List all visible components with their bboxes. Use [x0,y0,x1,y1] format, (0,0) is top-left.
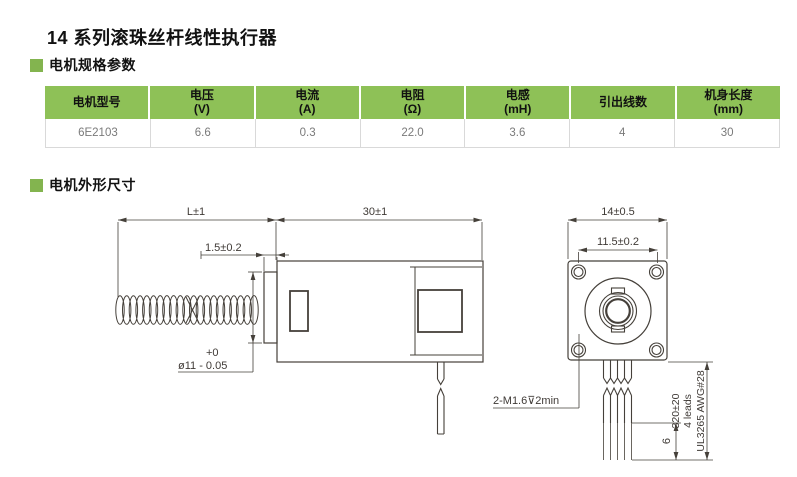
arrowhead [256,253,264,258]
col-header-inductance: 电感(mH) [464,86,569,119]
dimension-drawing: L±1 30±1 1.5±0.2 +0 ø11 - 0.05 [0,200,797,477]
table-row: 6E2103 6.6 0.3 22.0 3.6 4 30 [45,119,780,148]
center-boss [585,278,651,344]
arrowhead [705,362,710,370]
side-view: L±1 30±1 1.5±0.2 +0 ø11 - 0.05 [116,206,483,434]
dim-lines-top [118,220,482,297]
dim-label-boss-thickness: 1.5±0.2 [205,242,242,254]
dim-label-hole-spacing: 11.5±0.2 [597,236,639,248]
col-header-leads: 引出线数 [569,86,674,119]
stripped-wire-ends [604,423,632,460]
dim-label-diameter: ø11 - 0.05 [178,360,227,372]
motor-body-inner-windows [290,290,462,332]
lead-wires [604,360,632,423]
arrowhead [268,218,277,223]
dim-label-diameter-tolerance: +0 [206,347,219,359]
cell-leads: 4 [569,119,674,147]
col-header-body-length: 机身长度(mm) [675,86,780,119]
arrowhead [579,248,588,253]
motor-body-outline [264,261,483,362]
cell-voltage: 6.6 [150,119,255,147]
front-view: 14±0.5 11.5±0.2 [493,206,713,460]
arrowhead [568,218,577,223]
datasheet-page: 14 系列滚珠丝杆线性执行器 电机规格参数 电机型号 电压(V) 电流(A) 电… [0,0,797,477]
page-title: 14 系列滚珠丝杆线性执行器 [47,24,277,50]
section-header-dimensions: 电机外形尺寸 [30,175,136,195]
screw-break-mark [186,297,199,323]
cell-body-length: 30 [674,119,779,147]
dim-label-strip-length: 6 [661,438,673,444]
arrowhead [705,452,710,460]
arrowhead [659,218,668,223]
cell-current: 0.3 [255,119,360,147]
section-label: 电机外形尺寸 [49,175,136,195]
table-header-row: 电机型号 电压(V) 电流(A) 电阻(Ω) 电感(mH) 引出线数 机身长度(… [45,86,780,119]
side-wire [438,362,445,434]
arrowhead [649,248,658,253]
wire-spec-label: UL3265 AWG#28 [695,370,707,451]
wire-length-label: 320±20 [670,393,682,428]
dim-label-width: 14±0.5 [601,206,635,218]
arrowhead [474,218,483,223]
cell-inductance: 3.6 [464,119,569,147]
arrowhead [277,253,285,258]
section-marker-icon [30,179,43,192]
col-header-resistance: 电阻(Ω) [359,86,464,119]
arrowhead [251,272,256,280]
section-label: 电机规格参数 [49,55,136,75]
wire-count-label: 4 leads [682,394,694,428]
motor-spec-table: 电机型号 电压(V) 电流(A) 电阻(Ω) 电感(mH) 引出线数 机身长度(… [45,86,780,148]
tap-label: 2-M1.6⊽2min [493,395,559,407]
col-header-current: 电流(A) [254,86,359,119]
arrowhead [276,218,285,223]
col-header-voltage: 电压(V) [148,86,253,119]
arrowhead [118,218,127,223]
arrowhead [251,335,256,343]
dim-label-body-length: 30±1 [363,206,387,218]
dim-label-screw-length: L±1 [187,206,205,218]
arrowhead [674,452,679,460]
col-header-model: 电机型号 [45,86,148,119]
cell-model: 6E2103 [46,119,150,147]
section-marker-icon [30,59,43,72]
cell-resistance: 22.0 [360,119,465,147]
section-header-specs: 电机规格参数 [30,55,136,75]
